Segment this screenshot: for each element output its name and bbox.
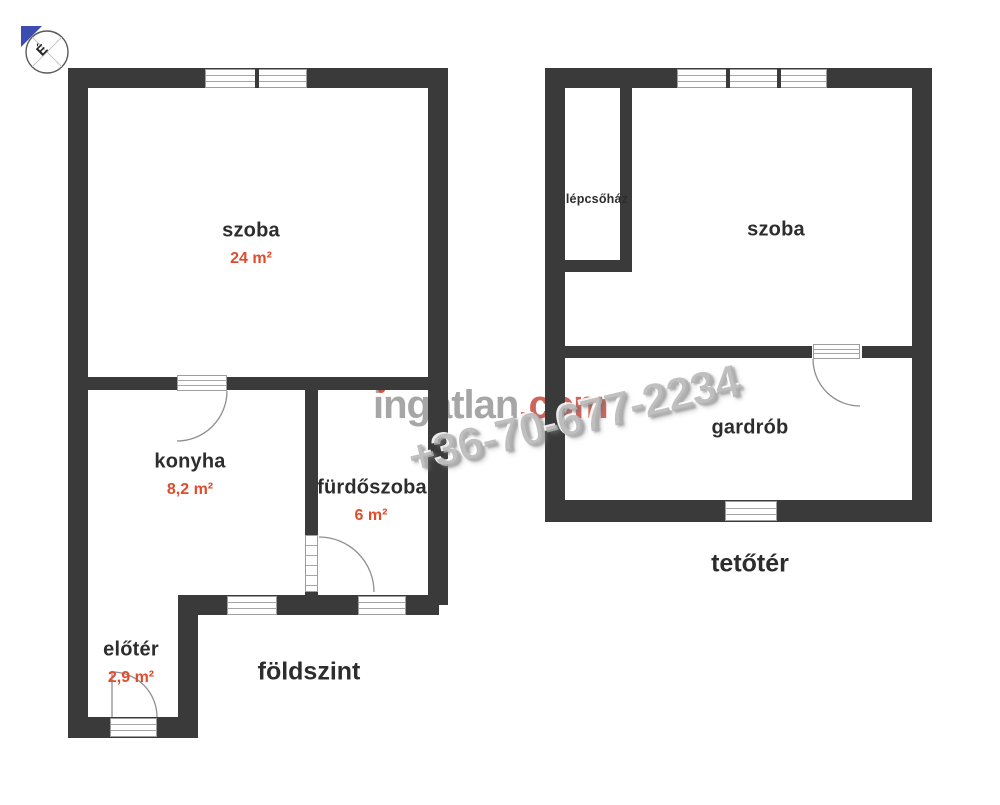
room-area-szoba-ground: 24 m²: [230, 250, 272, 268]
phone-watermark: +36-70-677-2234: [403, 353, 745, 485]
wall-segment: [620, 88, 632, 272]
room-label-szoba-ground: szoba: [222, 220, 280, 243]
wall-segment: [305, 592, 318, 615]
wall-segment: [912, 68, 932, 522]
wall-segment: [862, 346, 912, 358]
door-swing-arc: [319, 537, 374, 592]
window-symbol: [725, 501, 777, 521]
door-leaf-symbol: [177, 375, 227, 391]
wall-segment: [227, 377, 428, 390]
window-symbol: [205, 69, 307, 88]
floor-label-ground: földszint: [258, 658, 361, 687]
room-area-eloter: 2,9 m²: [108, 669, 154, 687]
room-label-gardrob: gardrób: [712, 417, 789, 440]
floor-label-attic: tetőtér: [711, 550, 789, 579]
room-label-szoba-attic: szoba: [747, 219, 805, 242]
floor-plan-canvas: É ingatlan.com: [0, 0, 1000, 805]
door-swing-arc: [813, 359, 860, 406]
room-area-konyha: 8,2 m²: [167, 481, 213, 499]
door-leaf-symbol: [813, 344, 860, 359]
wall-segment: [88, 377, 177, 390]
room-area-furdoszoba: 6 m²: [355, 507, 388, 525]
entry-door-sill-symbol: [110, 718, 157, 737]
door-leaf-symbol: [305, 535, 318, 592]
room-label-konyha: konyha: [154, 451, 225, 474]
wall-segment: [565, 346, 812, 358]
wall-segment: [545, 68, 565, 522]
window-symbol: [677, 69, 827, 88]
window-symbol: [227, 596, 277, 615]
wall-segment: [305, 390, 318, 535]
wall-segment: [68, 68, 88, 738]
room-label-lepcsohaz: lépcsőház: [566, 192, 628, 206]
wall-segment: [565, 260, 632, 272]
room-label-eloter: előtér: [103, 639, 159, 662]
compass-icon: É: [8, 10, 80, 82]
door-swing-arc: [177, 391, 227, 441]
room-label-furdoszoba: fürdőszoba: [317, 477, 427, 500]
wall-segment: [428, 68, 448, 605]
window-symbol: [358, 596, 406, 615]
